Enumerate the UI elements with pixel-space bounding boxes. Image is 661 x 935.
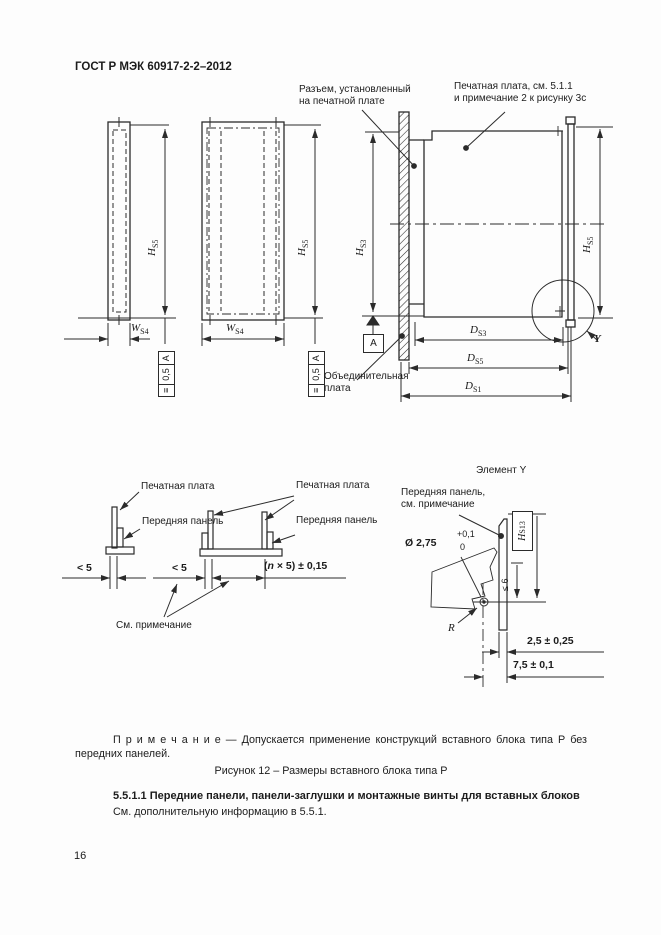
callout-backplane: Объединительная плата <box>324 371 409 395</box>
tolerance-frame-right: ≡ 0,5 A <box>308 351 325 397</box>
view-front <box>202 117 284 325</box>
dim-hs3: HS3 <box>354 240 368 256</box>
callout-pcb: Печатная плата, см. 5.1.1 и примечание 2… <box>454 81 586 105</box>
dim-n-times-5: (n × 5) ± 0,15 <box>264 560 327 572</box>
view-side-assembly <box>390 112 608 360</box>
dim-7-5: 7,5 ± 0,1 <box>513 659 554 671</box>
page-number: 16 <box>74 850 86 862</box>
dim-hs5-middle: HS5 <box>296 240 310 256</box>
view-side-left <box>108 117 130 325</box>
callout-pcb-fig1: Печатная плата <box>141 481 214 493</box>
tolerance-frame-left: ≡ 0,5 A <box>158 351 175 397</box>
callout-pcb-fig2: Печатная плата <box>296 480 369 492</box>
datum-triangle <box>367 316 379 325</box>
dim-ds5: DS5 <box>467 352 483 366</box>
dim-ds1: DS1 <box>465 380 481 394</box>
callout-connector: Разъем, установленный на печатной плате <box>299 84 411 108</box>
page-header: ГОСТ Р МЭК 60917-2-2–2012 <box>75 61 232 73</box>
datum-a-box: A <box>363 334 384 353</box>
dim-lt5-fig2: < 5 <box>172 562 187 574</box>
tolerance-datum-ref: A <box>309 352 324 364</box>
document-page: { "doc": { "header": "ГОСТ Р МЭК 60917-2… <box>0 0 661 935</box>
dim-le6: ≤ 6 <box>500 579 510 591</box>
callout-front-panel-fig2: Передняя панель <box>296 515 377 527</box>
dim-radius: R <box>448 622 455 634</box>
see-note-label: См. примечание <box>116 620 192 632</box>
dim-diameter: Ø 2,75 <box>405 537 437 549</box>
dim-ds3: DS3 <box>470 324 486 338</box>
callout-front-panel-fig1: Передняя панель <box>142 516 223 528</box>
detail-y-label: Y <box>594 333 601 345</box>
figure-front-panel-spacing <box>62 492 346 617</box>
section-heading: 5.5.1.1 Передние панели, панели-заглушки… <box>113 790 580 802</box>
note-paragraph: П р и м е ч а н и е — Допускается примен… <box>75 734 587 761</box>
callout-front-panel-y: Передняя панель, см. примечание <box>401 487 485 511</box>
dim-ws4-middle: WS4 <box>226 322 244 336</box>
tolerance-value: 0,5 <box>309 364 324 384</box>
element-y-title: Элемент Y <box>476 465 526 477</box>
dimension-lines <box>64 110 613 402</box>
tolerance-datum-ref: A <box>159 352 174 364</box>
dim-tolerance-plus: +0,1 <box>457 529 475 539</box>
dim-hs5-left: HS5 <box>146 240 160 256</box>
dim-lt5-fig1: < 5 <box>77 562 92 574</box>
figure-caption: Рисунок 12 – Размеры вставного блока тип… <box>75 765 587 777</box>
tolerance-symbol: ≡ <box>159 384 174 396</box>
dim-hs5-right: HS5 <box>581 237 595 253</box>
dim-tolerance-zero: 0 <box>460 542 465 552</box>
dim-hs13: HS13 <box>512 511 533 551</box>
tolerance-symbol: ≡ <box>309 384 324 396</box>
tolerance-value: 0,5 <box>159 364 174 384</box>
dim-ws4-left: WS4 <box>131 322 149 336</box>
section-body: См. дополнительную информацию в 5.5.1. <box>113 806 327 818</box>
dim-2-5: 2,5 ± 0,25 <box>527 635 574 647</box>
